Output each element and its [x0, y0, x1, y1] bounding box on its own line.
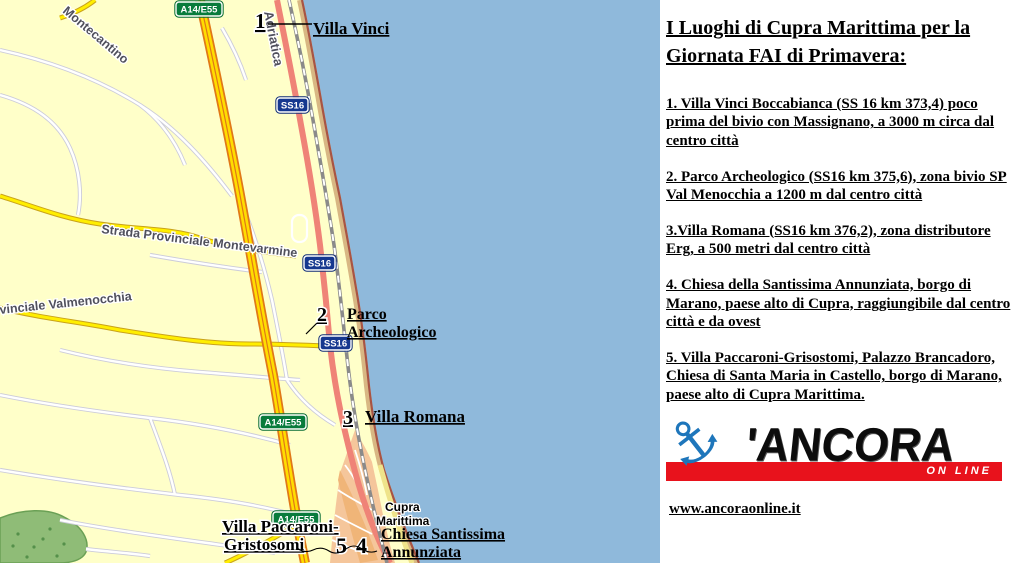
panel-title: I Luoghi di Cupra Marittima per laGiorna… — [666, 14, 1015, 71]
label-villa-romana: Villa Romana — [365, 407, 465, 426]
logo-wordmark: 'ANCORA — [743, 419, 957, 470]
list-item-3: 3.Villa Romana (SS16 km 376,2), zona dis… — [666, 222, 1018, 259]
list-item-4: 4. Chiesa della Santissima Annunziata, b… — [666, 276, 1018, 332]
badge-a14-mid: A14/E55 — [259, 414, 307, 430]
label-paccaroni-line2: Gristosomi — [224, 535, 305, 554]
marker-3: 3 — [343, 407, 353, 429]
label-villa-vinci: Villa Vinci — [313, 19, 390, 38]
label-parco-line2: Archeologico — [347, 324, 436, 341]
svg-text:SS16: SS16 — [281, 101, 304, 112]
marker-1: 1 — [255, 9, 266, 33]
panel-title-line2: Giornata FAI di Primavera: — [666, 45, 906, 67]
logo-tagline: ON LINE — [926, 465, 992, 477]
panel-title-line1: I Luoghi di Cupra Marittima per la — [666, 17, 970, 39]
svg-text:SS16: SS16 — [308, 259, 331, 270]
road-map: Montecantino Adriatica Strada Provincial… — [0, 0, 660, 563]
label-parco-line1: Parco — [347, 306, 387, 323]
list-item-5: 5. Villa Paccaroni-Grisostomi, Palazzo B… — [666, 349, 1018, 405]
marker-5: 5 — [336, 533, 347, 558]
badge-a14-top: A14/E55 — [175, 1, 223, 17]
website-link[interactable]: www.ancoraonline.it — [669, 501, 801, 518]
label-cupra: Cupra — [385, 500, 420, 514]
map-canvas: Montecantino Adriatica Strada Provincial… — [0, 0, 660, 563]
svg-text:A14/E55: A14/E55 — [181, 5, 219, 16]
marker-4: 4 — [356, 533, 367, 558]
label-chiesa-line1: Chiesa Santissima — [381, 526, 505, 543]
badge-ss16-top: SS16 — [276, 97, 309, 113]
svg-text:A14/E55: A14/E55 — [265, 418, 303, 429]
label-chiesa-line2: Annunziata — [381, 544, 461, 561]
screenshot: Montecantino Adriatica Strada Provincial… — [0, 0, 1019, 563]
list-item-1: 1. Villa Vinci Boccabianca (SS 16 km 373… — [666, 95, 1018, 151]
ancora-logo: 'ANCORA ⚓ ON LINE — [666, 422, 1002, 486]
label-paccaroni-line1: Villa Paccaroni- — [222, 517, 339, 536]
badge-ss16-mid: SS16 — [303, 255, 336, 271]
marker-2: 2 — [317, 304, 327, 326]
info-panel: I Luoghi di Cupra Marittima per laGiorna… — [660, 0, 1019, 563]
list-item-2: 2. Parco Archeologico (SS16 km 375,6), z… — [666, 168, 1018, 205]
svg-text:SS16: SS16 — [324, 339, 347, 350]
